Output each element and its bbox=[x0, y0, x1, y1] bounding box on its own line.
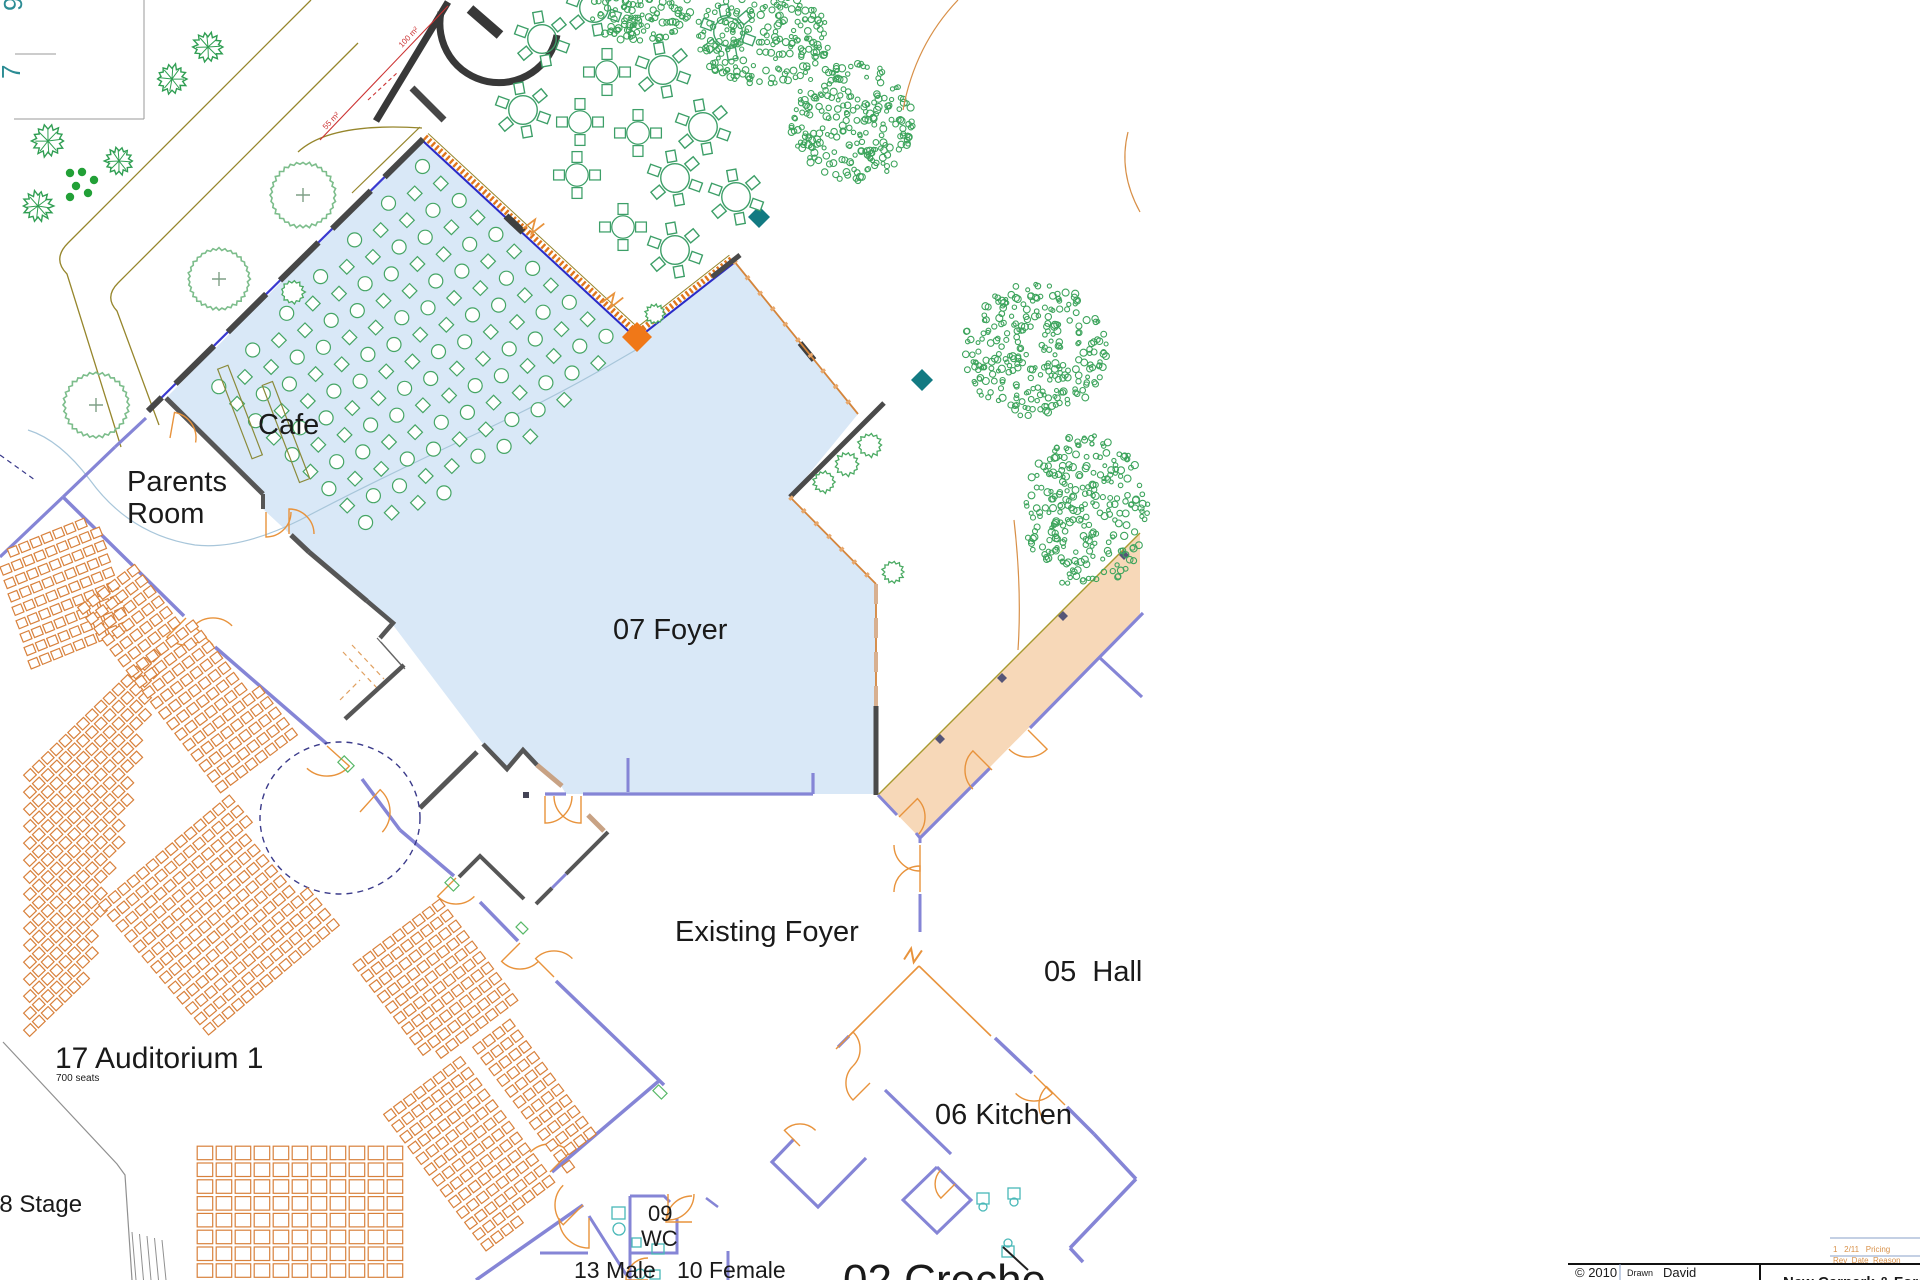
svg-text:David: David bbox=[1663, 1265, 1696, 1280]
svg-text:02 Creche: 02 Creche bbox=[843, 1256, 1046, 1280]
svg-text:WC: WC bbox=[641, 1226, 678, 1251]
svg-text:09: 09 bbox=[648, 1201, 672, 1226]
svg-text:700 seats: 700 seats bbox=[56, 1073, 99, 1084]
svg-text:10 Female: 10 Female bbox=[677, 1257, 786, 1280]
svg-text:17 Auditorium 1: 17 Auditorium 1 bbox=[55, 1042, 263, 1075]
svg-text:1 2/11 Pricing: 1 2/11 Pricing bbox=[1833, 1245, 1890, 1254]
svg-text:Rev Date Reason: Rev Date Reason bbox=[1833, 1256, 1901, 1265]
svg-text:Cafe: Cafe bbox=[258, 409, 319, 441]
svg-text:06 Kitchen: 06 Kitchen bbox=[935, 1099, 1072, 1131]
svg-text:© 2010: © 2010 bbox=[1575, 1265, 1617, 1280]
svg-text:Parents: Parents bbox=[127, 466, 227, 498]
svg-text:New Carpark & Fore: New Carpark & Fore bbox=[1783, 1274, 1920, 1280]
svg-text:9: 9 bbox=[0, 0, 28, 11]
svg-text:7: 7 bbox=[0, 65, 26, 79]
svg-text:13 Male: 13 Male bbox=[574, 1257, 656, 1280]
svg-text:Drawn: Drawn bbox=[1627, 1268, 1653, 1278]
svg-text:18 Stage: 18 Stage bbox=[0, 1191, 82, 1218]
svg-text:05 Hall: 05 Hall bbox=[1044, 956, 1142, 988]
svg-text:Existing Foyer: Existing Foyer bbox=[675, 916, 859, 948]
svg-text:07 Foyer: 07 Foyer bbox=[613, 614, 728, 646]
svg-text:Room: Room bbox=[127, 498, 204, 530]
